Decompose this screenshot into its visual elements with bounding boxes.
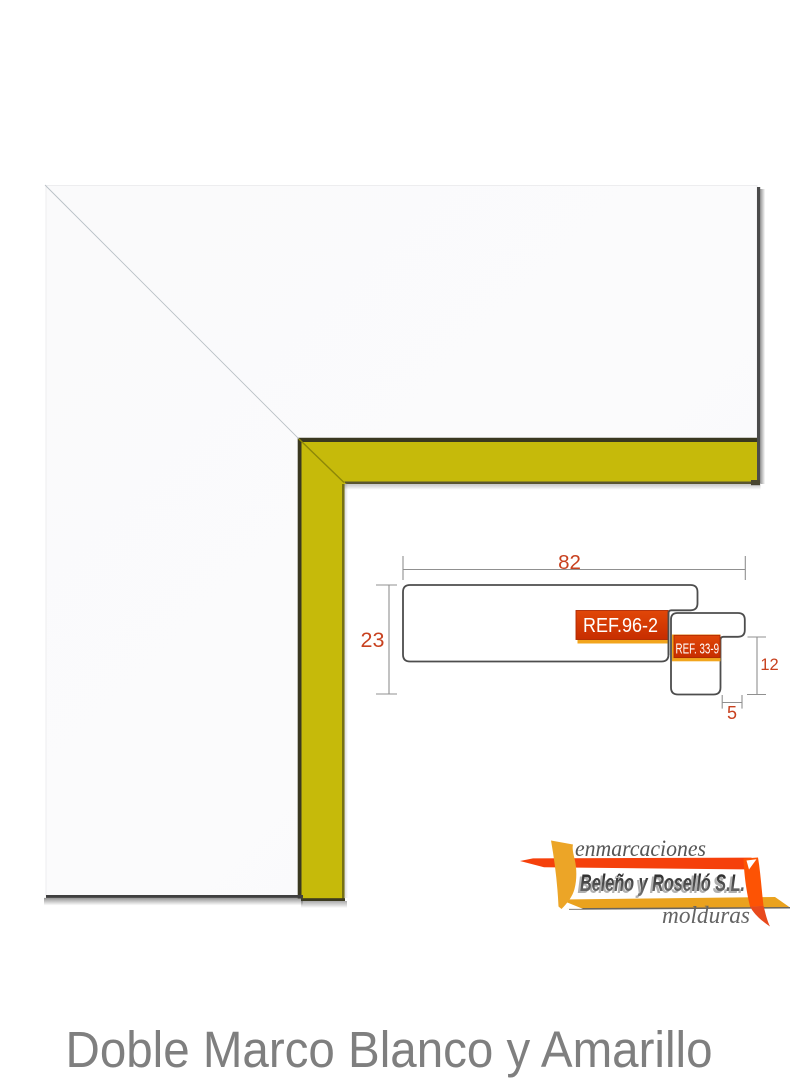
svg-text:Doble Marco Blanco y Amarillo: Doble Marco Blanco y Amarillo — [66, 1021, 713, 1078]
svg-text:molduras: molduras — [662, 903, 750, 929]
svg-text:enmarcaciones: enmarcaciones — [575, 836, 706, 861]
svg-text:Beleño y Roselló S.L.: Beleño y Roselló S.L. — [580, 870, 745, 897]
svg-text:REF. 33-9: REF. 33-9 — [676, 641, 720, 658]
svg-text:12: 12 — [760, 656, 778, 674]
svg-text:5: 5 — [727, 703, 737, 723]
svg-text:23: 23 — [361, 628, 385, 652]
svg-text:REF.96-2: REF.96-2 — [583, 615, 658, 637]
svg-text:82: 82 — [558, 551, 581, 574]
